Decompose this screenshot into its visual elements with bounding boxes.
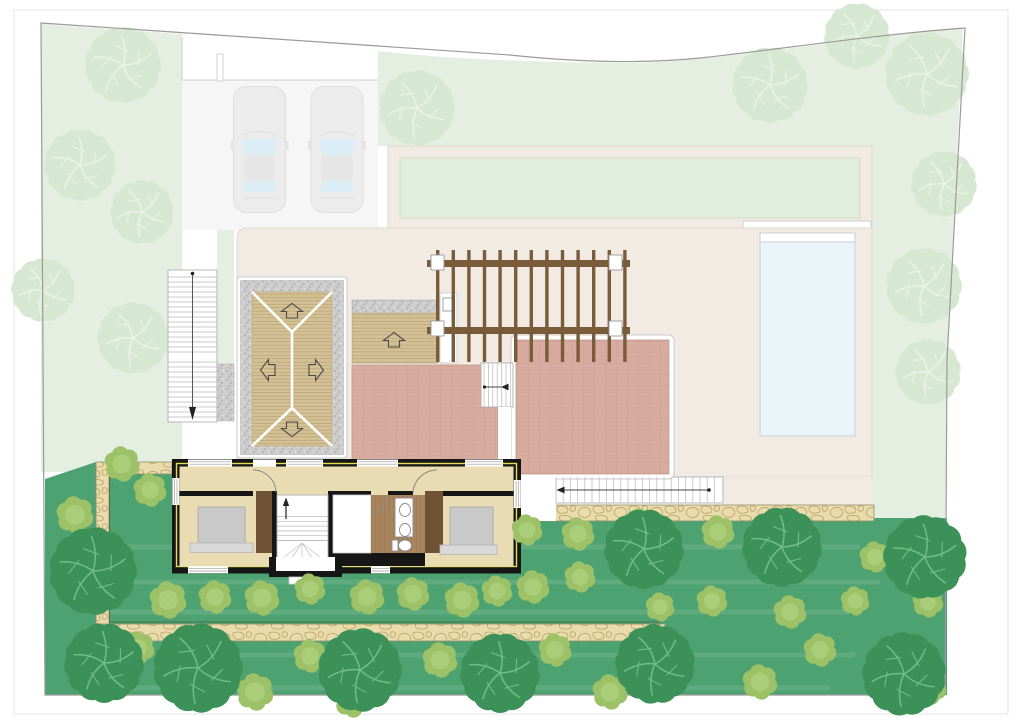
sink-2: [400, 524, 411, 537]
site-plan-drawing: [0, 0, 1024, 724]
garden-pale-strip: [217, 230, 234, 364]
window: [371, 566, 390, 573]
wall-hall-1: [180, 491, 254, 496]
car: [308, 87, 366, 213]
tiled-roof-west: [352, 365, 498, 473]
tree: [460, 634, 540, 713]
wall-bath-south: [371, 553, 425, 566]
pergola-beam: [427, 327, 630, 334]
stairs-south-dot: [707, 488, 711, 492]
terrace-lawn: [400, 158, 860, 218]
bed-west-foot: [190, 543, 253, 553]
stairs-west-start-dot: [191, 272, 195, 276]
bed-west: [198, 507, 245, 543]
wardrobe-west: [256, 491, 272, 553]
closet-room: [333, 495, 371, 553]
window: [188, 566, 228, 573]
window: [286, 460, 323, 467]
pool-deck: [760, 233, 855, 242]
sink-1: [400, 504, 411, 517]
roof2-gravel: [353, 301, 438, 314]
bed-east-foot: [440, 545, 497, 555]
window: [357, 460, 398, 467]
car: [231, 87, 289, 213]
walkway-east: [521, 477, 556, 521]
deck-roof-small: [352, 300, 438, 363]
entry-door-opening: [253, 460, 276, 467]
bed-east: [450, 507, 493, 545]
wall-west: [172, 459, 180, 574]
pool-water: [760, 242, 855, 436]
wall-east: [514, 459, 522, 574]
pergola-connector: [609, 321, 622, 336]
window: [465, 460, 503, 467]
roof2-wood: [353, 313, 438, 363]
roof-terrace: [388, 146, 872, 233]
column-cap: [443, 298, 453, 311]
window: [172, 478, 179, 505]
bay-inside: [276, 557, 335, 571]
terrace-lower-right: [723, 477, 872, 507]
wardrobe-east: [425, 491, 443, 553]
building: [172, 459, 521, 584]
swimming-pool: [760, 233, 855, 436]
pergola-connector: [609, 255, 622, 270]
toilet-tank: [392, 540, 398, 551]
deck-roof-main: [237, 277, 347, 458]
pergola-connector: [431, 255, 444, 270]
window: [514, 480, 521, 508]
pergola-beam: [427, 260, 630, 267]
bathroom: [371, 495, 425, 553]
stairs-mid-dot: [483, 385, 486, 388]
wall-hall-4: [437, 491, 514, 496]
toilet-bowl: [399, 540, 412, 551]
pergola-connector: [431, 321, 444, 336]
window: [188, 460, 232, 467]
gravel-strip-west: [217, 364, 234, 421]
gate-post: [217, 54, 223, 81]
site-plan-canvas: [0, 0, 1024, 724]
